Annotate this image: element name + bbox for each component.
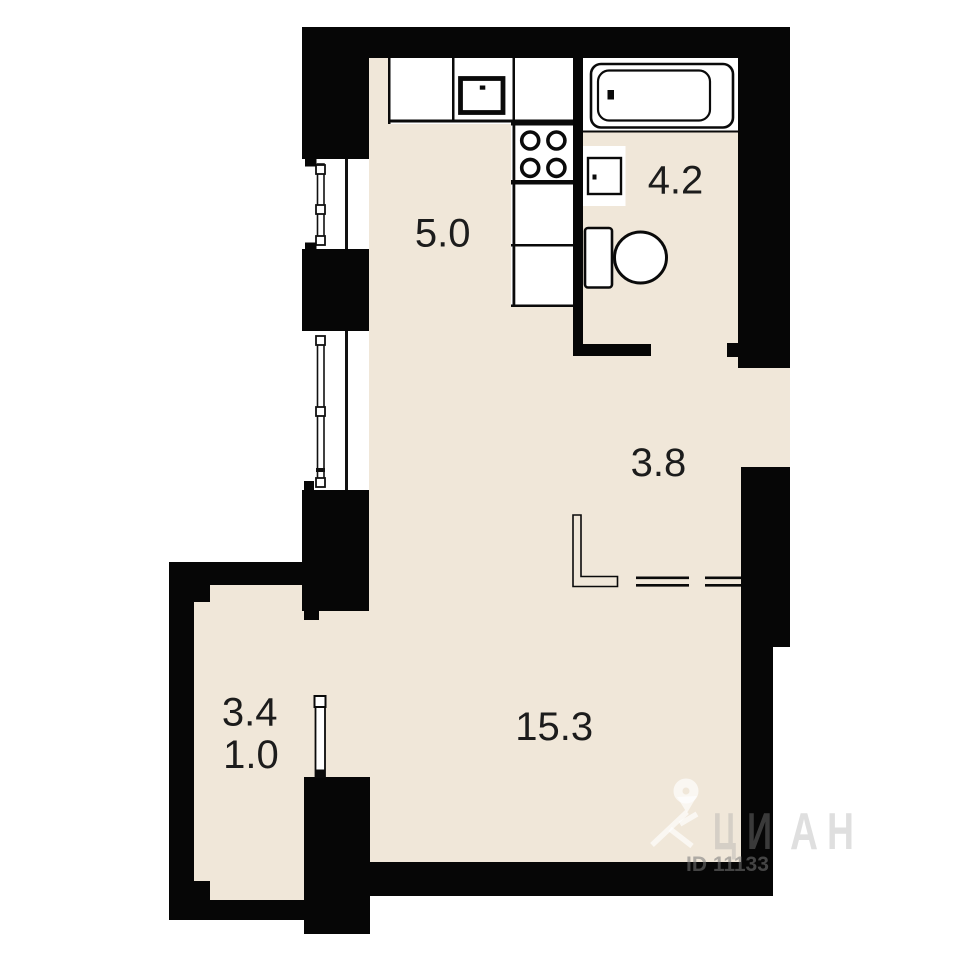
svg-text:5.0: 5.0 (415, 211, 471, 255)
svg-text:1.0: 1.0 (223, 733, 279, 777)
svg-text:А: А (790, 803, 818, 861)
svg-text:4.2: 4.2 (648, 159, 704, 203)
svg-text:Н: Н (827, 803, 854, 861)
svg-text:ID 11133: ID 11133 (686, 853, 769, 876)
svg-text:3.4: 3.4 (222, 691, 278, 735)
svg-text:15.3: 15.3 (515, 705, 593, 749)
svg-text:3.8: 3.8 (631, 441, 687, 485)
